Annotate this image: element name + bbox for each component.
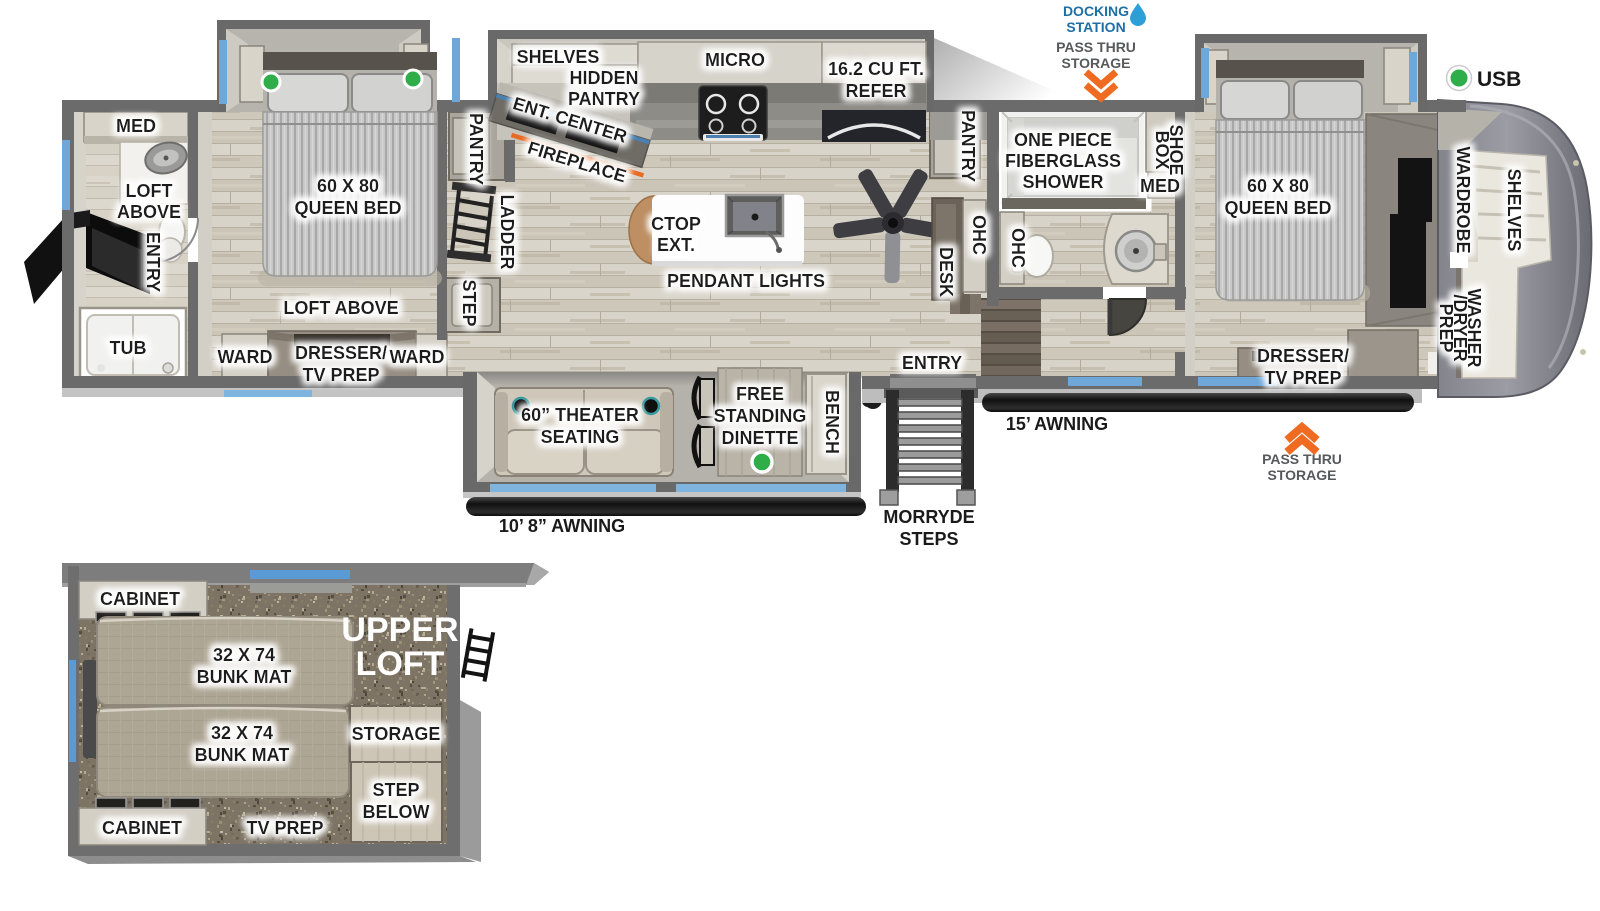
svg-text:10’ 8” AWNING: 10’ 8” AWNING (499, 516, 625, 536)
svg-text:TUB: TUB (110, 338, 147, 358)
svg-text:BUNK MAT: BUNK MAT (195, 745, 290, 765)
svg-text:OHC: OHC (969, 215, 989, 255)
svg-text:PASS THRU: PASS THRU (1262, 451, 1342, 467)
svg-text:BELOW: BELOW (363, 802, 430, 822)
svg-text:DESK: DESK (936, 247, 956, 297)
svg-text:PENDANT LIGHTS: PENDANT LIGHTS (667, 271, 825, 291)
svg-text:16.2 CU FT.: 16.2 CU FT. (828, 59, 924, 79)
svg-text:USB: USB (1477, 68, 1521, 91)
svg-text:LOFT: LOFT (356, 645, 445, 683)
svg-text:MED: MED (116, 116, 156, 136)
svg-text:REFER: REFER (845, 81, 906, 101)
svg-text:MED: MED (1140, 176, 1180, 196)
svg-text:TV PREP: TV PREP (1264, 368, 1341, 388)
svg-text:WARD: WARD (390, 347, 445, 367)
svg-text:UPPER: UPPER (341, 611, 458, 649)
svg-text:OHC: OHC (1008, 228, 1028, 268)
svg-text:STORAGE: STORAGE (1062, 55, 1131, 71)
svg-text:ENTRY: ENTRY (143, 232, 163, 292)
svg-text:32 X 74: 32 X 74 (211, 723, 273, 743)
svg-text:FREE: FREE (736, 384, 784, 404)
svg-text:CABINET: CABINET (102, 818, 182, 838)
svg-text:EXT.: EXT. (657, 235, 695, 255)
svg-text:BUNK MAT: BUNK MAT (197, 667, 292, 687)
svg-text:QUEEN BED: QUEEN BED (1224, 198, 1331, 218)
svg-text:STEP: STEP (372, 780, 419, 800)
svg-text:DINETTE: DINETTE (721, 428, 798, 448)
svg-text:SEATING: SEATING (541, 427, 620, 447)
svg-text:LADDER: LADDER (497, 195, 517, 270)
svg-text:MICRO: MICRO (705, 50, 765, 70)
svg-text:MORRYDE: MORRYDE (883, 507, 974, 527)
svg-text:PREP: PREP (1436, 303, 1456, 352)
svg-text:ENTRY: ENTRY (902, 353, 962, 373)
svg-text:STEPS: STEPS (899, 529, 958, 549)
svg-text:CABINET: CABINET (100, 589, 180, 609)
svg-text:DOCKING: DOCKING (1063, 3, 1129, 19)
svg-text:PANTRY: PANTRY (568, 89, 640, 109)
svg-text:ABOVE: ABOVE (117, 202, 181, 222)
svg-text:QUEEN BED: QUEEN BED (294, 198, 401, 218)
svg-text:60 X 80: 60 X 80 (1247, 176, 1309, 196)
svg-text:STATION: STATION (1066, 19, 1125, 35)
svg-text:60” THEATER: 60” THEATER (521, 405, 639, 425)
svg-text:DRESSER/: DRESSER/ (1257, 346, 1349, 366)
svg-text:TV PREP: TV PREP (246, 818, 323, 838)
svg-text:STANDING: STANDING (714, 406, 807, 426)
svg-text:STORAGE: STORAGE (352, 724, 441, 744)
svg-text:SHELVES: SHELVES (1504, 169, 1524, 252)
svg-text:HIDDEN: HIDDEN (569, 68, 638, 88)
svg-text:PANTRY: PANTRY (958, 110, 978, 182)
svg-text:ONE PIECE: ONE PIECE (1014, 130, 1112, 150)
svg-text:15’ AWNING: 15’ AWNING (1006, 414, 1108, 434)
svg-text:60 X 80: 60 X 80 (317, 176, 379, 196)
svg-text:TV PREP: TV PREP (302, 365, 379, 385)
svg-text:LOFT ABOVE: LOFT ABOVE (283, 298, 398, 318)
svg-text:PANTRY: PANTRY (466, 113, 486, 185)
svg-text:BENCH: BENCH (822, 390, 842, 454)
svg-text:PASS THRU: PASS THRU (1056, 39, 1136, 55)
svg-text:WARDROBE: WARDROBE (1453, 147, 1473, 254)
svg-text:STORAGE: STORAGE (1268, 467, 1337, 483)
svg-text:SHOWER: SHOWER (1023, 172, 1104, 192)
svg-text:WARD: WARD (218, 347, 273, 367)
svg-text:32 X 74: 32 X 74 (213, 645, 275, 665)
svg-text:SHELVES: SHELVES (517, 47, 600, 67)
svg-text:FIBERGLASS: FIBERGLASS (1005, 151, 1121, 171)
svg-text:STEP: STEP (459, 279, 479, 326)
svg-text:CTOP: CTOP (651, 214, 701, 234)
svg-text:LOFT: LOFT (126, 181, 173, 201)
svg-text:BOX: BOX (1152, 130, 1172, 169)
svg-text:DRESSER/: DRESSER/ (295, 343, 387, 363)
